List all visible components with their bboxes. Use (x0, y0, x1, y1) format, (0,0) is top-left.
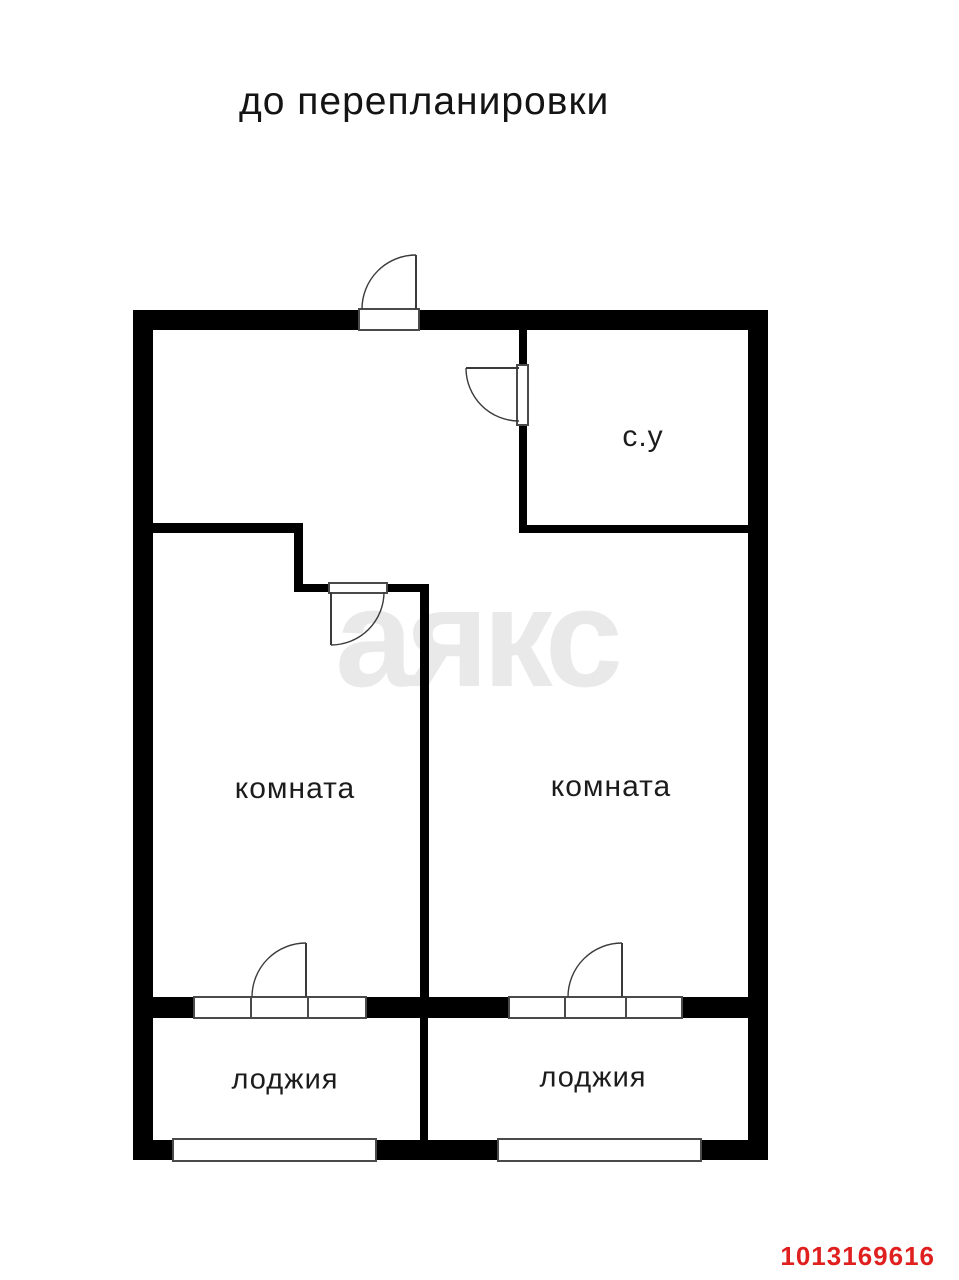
bathroom-door-sill (516, 364, 529, 426)
balcony-door-left-arc (252, 943, 306, 997)
bathroom-door-arc (466, 368, 519, 421)
listing-id: 1013169616 (780, 1241, 935, 1272)
entrance-door-sill (358, 308, 420, 331)
room-left-door-sill (328, 582, 388, 594)
wall-outer-right (748, 310, 768, 1160)
wall-hall-step-vertical (294, 523, 303, 592)
wall-outer-top (133, 310, 768, 330)
wall-room-divider (420, 584, 429, 997)
window-divider (250, 997, 252, 1018)
label-loggia-left: лоджия (232, 1064, 339, 1097)
entrance-door-arc (362, 255, 416, 309)
wall-loggia-divider (420, 1018, 428, 1140)
wall-bathroom-left (519, 330, 527, 525)
window-loggia-right (508, 996, 683, 1019)
window-divider (625, 997, 627, 1018)
window-loggia-left (193, 996, 367, 1019)
window-divider (564, 997, 566, 1018)
window-bottom-right (497, 1138, 702, 1162)
window-divider (307, 997, 309, 1018)
wall-outer-left (133, 310, 153, 1160)
window-bottom-left (172, 1138, 377, 1162)
label-loggia-right: лоджия (540, 1062, 647, 1095)
floor-plan-page: до перепланировки аякс (0, 0, 959, 1280)
label-room-left: комната (235, 772, 355, 806)
balcony-door-right-arc (568, 943, 622, 997)
label-bathroom: с.у (622, 420, 663, 454)
wall-bathroom-bottom (519, 525, 748, 533)
page-title: до перепланировки (239, 80, 609, 124)
label-room-right: комната (551, 770, 671, 804)
wall-hall-step-horizontal (153, 523, 303, 533)
